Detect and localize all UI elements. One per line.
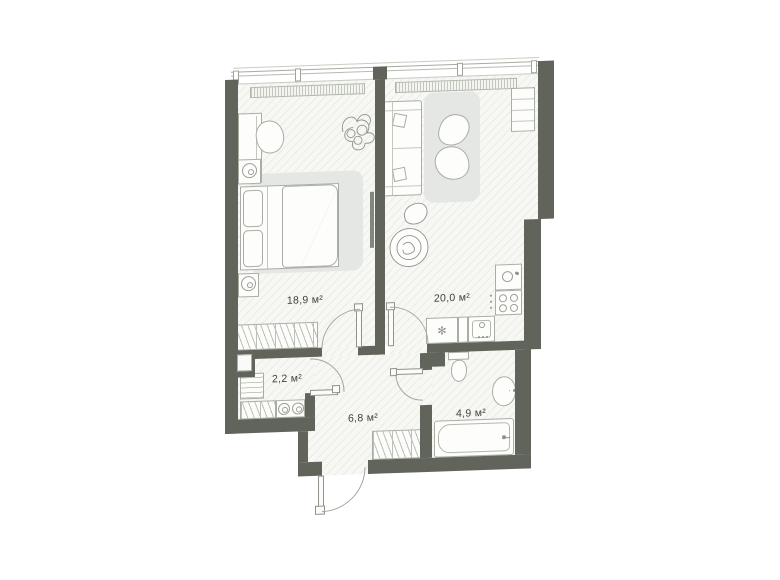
- wall-segment: [298, 431, 308, 462]
- kitchen-cabinet: [458, 317, 468, 343]
- washing-machine-drum: [278, 403, 290, 415]
- pillow: [243, 190, 263, 228]
- wall-segment: [298, 462, 322, 477]
- wall-segment: [420, 405, 432, 458]
- kitchen-cabinet: [495, 264, 522, 291]
- wall-segment: [375, 79, 385, 354]
- floor-plan: ✻: [225, 60, 555, 522]
- wall-segment: [432, 352, 445, 366]
- bedroom-door: [356, 309, 362, 347]
- shelving-unit: [511, 87, 535, 132]
- wall-segment: [515, 349, 531, 455]
- duct-shaft: [237, 354, 252, 372]
- wall-segment: [420, 454, 531, 472]
- wardrobe: [240, 400, 276, 419]
- bathroom-door: [396, 368, 423, 375]
- hallway-wardrobe: [372, 429, 427, 460]
- living-door-cap: [386, 302, 395, 310]
- living-door: [388, 308, 394, 346]
- washer-dryer: [276, 399, 305, 418]
- fridge-snowflake-icon: ✻: [427, 324, 457, 338]
- wall-segment: [373, 66, 387, 79]
- sofa: [382, 100, 422, 196]
- doorway-floor: [420, 370, 432, 405]
- entrance-door: [318, 476, 324, 508]
- window-mullion: [457, 63, 463, 76]
- wall-segment: [538, 61, 554, 220]
- wall-segment: [225, 80, 238, 434]
- tv: [370, 192, 374, 248]
- dryer-drum: [292, 402, 304, 414]
- pillow: [243, 230, 263, 268]
- room-area-label-bedroom: 18,9 м²: [287, 294, 323, 307]
- bathroom-door-cap: [390, 368, 397, 376]
- wall-segment: [368, 458, 420, 474]
- doorway-floor: [322, 346, 358, 356]
- room-area-label-hallway: 6,8 м²: [348, 412, 378, 425]
- bathtub: [434, 418, 514, 458]
- sofa-pillow: [392, 113, 407, 128]
- wall-segment: [358, 345, 385, 355]
- room-area-label-storage: 2,2 м²: [272, 372, 302, 385]
- wall-segment: [524, 219, 541, 350]
- storage-door-cap: [332, 385, 340, 393]
- doorway-floor: [322, 460, 368, 476]
- wardrobe: [236, 322, 318, 351]
- room-area-label-bathroom: 4,9 м²: [456, 407, 486, 420]
- bedroom-door-cap: [354, 303, 363, 311]
- kitchen-sink: [468, 316, 495, 343]
- page-background: ✻: [0, 0, 780, 580]
- entrance-door-cap: [315, 506, 325, 515]
- wall-segment: [305, 393, 315, 417]
- window-mullion: [295, 68, 301, 81]
- window-mullion: [531, 60, 537, 73]
- stove: [495, 290, 522, 316]
- room-area-label-living: 20,0 м²: [434, 291, 470, 304]
- sofa-pillow: [392, 167, 407, 182]
- blanket: [282, 184, 338, 268]
- fridge: ✻: [426, 317, 458, 344]
- doorway-floor: [305, 357, 315, 393]
